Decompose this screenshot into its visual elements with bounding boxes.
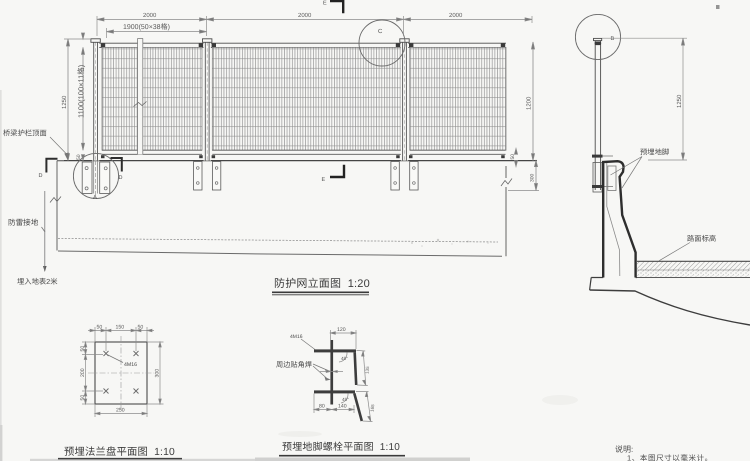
svg-text:1、本图尺寸以毫米计。: 1、本图尺寸以毫米计。	[627, 454, 713, 461]
svg-text:预埋地脚螺栓平面图 1:10: 预埋地脚螺栓平面图 1:10	[282, 441, 400, 453]
svg-text:120: 120	[337, 327, 346, 333]
svg-text:140: 140	[338, 404, 347, 410]
svg-text:桥梁护栏顶面: 桥梁护栏顶面	[3, 129, 47, 138]
svg-text:1200: 1200	[526, 96, 533, 110]
svg-text:1900(50×38格): 1900(50×38格)	[123, 23, 170, 31]
svg-text:80: 80	[319, 404, 325, 410]
svg-text:250: 250	[116, 408, 125, 414]
svg-text:埋入地表2米: 埋入地表2米	[17, 277, 58, 286]
svg-text:B: B	[611, 36, 615, 42]
svg-text:预埋地脚: 预埋地脚	[640, 148, 669, 157]
svg-text:4M16: 4M16	[124, 362, 137, 368]
svg-text:45°: 45°	[341, 356, 348, 361]
svg-text:周边贴角焊: 周边贴角焊	[276, 360, 312, 369]
svg-text:150: 150	[116, 325, 125, 331]
svg-text:45°: 45°	[342, 397, 349, 402]
svg-text:2000: 2000	[449, 12, 463, 19]
svg-text:C: C	[378, 28, 383, 35]
svg-text:50: 50	[80, 395, 86, 401]
svg-text:300: 300	[530, 173, 536, 182]
svg-text:165: 165	[370, 404, 376, 412]
svg-text:50: 50	[510, 154, 516, 160]
svg-text:2000: 2000	[298, 12, 312, 19]
svg-text:135: 135	[365, 366, 371, 374]
svg-text:预埋法兰盘平面图 1:10: 预埋法兰盘平面图 1:10	[64, 446, 175, 458]
svg-text:E: E	[323, 1, 327, 7]
svg-text:1250: 1250	[61, 95, 68, 109]
svg-text:50: 50	[80, 346, 86, 352]
svg-text:路面标高: 路面标高	[687, 234, 716, 243]
svg-text:50: 50	[76, 154, 82, 160]
svg-text:200: 200	[80, 368, 86, 377]
svg-text:A: A	[93, 194, 97, 201]
svg-text:D: D	[119, 175, 123, 181]
svg-text:1100(100×11格): 1100(100×11格)	[77, 64, 86, 118]
svg-text:50: 50	[138, 325, 144, 331]
svg-text:防护网立面图 1:20: 防护网立面图 1:20	[274, 277, 370, 290]
svg-text:1250: 1250	[676, 94, 683, 108]
svg-text:D: D	[39, 173, 43, 179]
svg-text:E: E	[322, 177, 326, 183]
svg-text:300: 300	[155, 369, 161, 378]
svg-text:2000: 2000	[143, 12, 157, 19]
svg-text:防雷接地: 防雷接地	[8, 218, 39, 227]
svg-text:50: 50	[97, 325, 103, 331]
svg-text:4M16: 4M16	[290, 334, 303, 340]
